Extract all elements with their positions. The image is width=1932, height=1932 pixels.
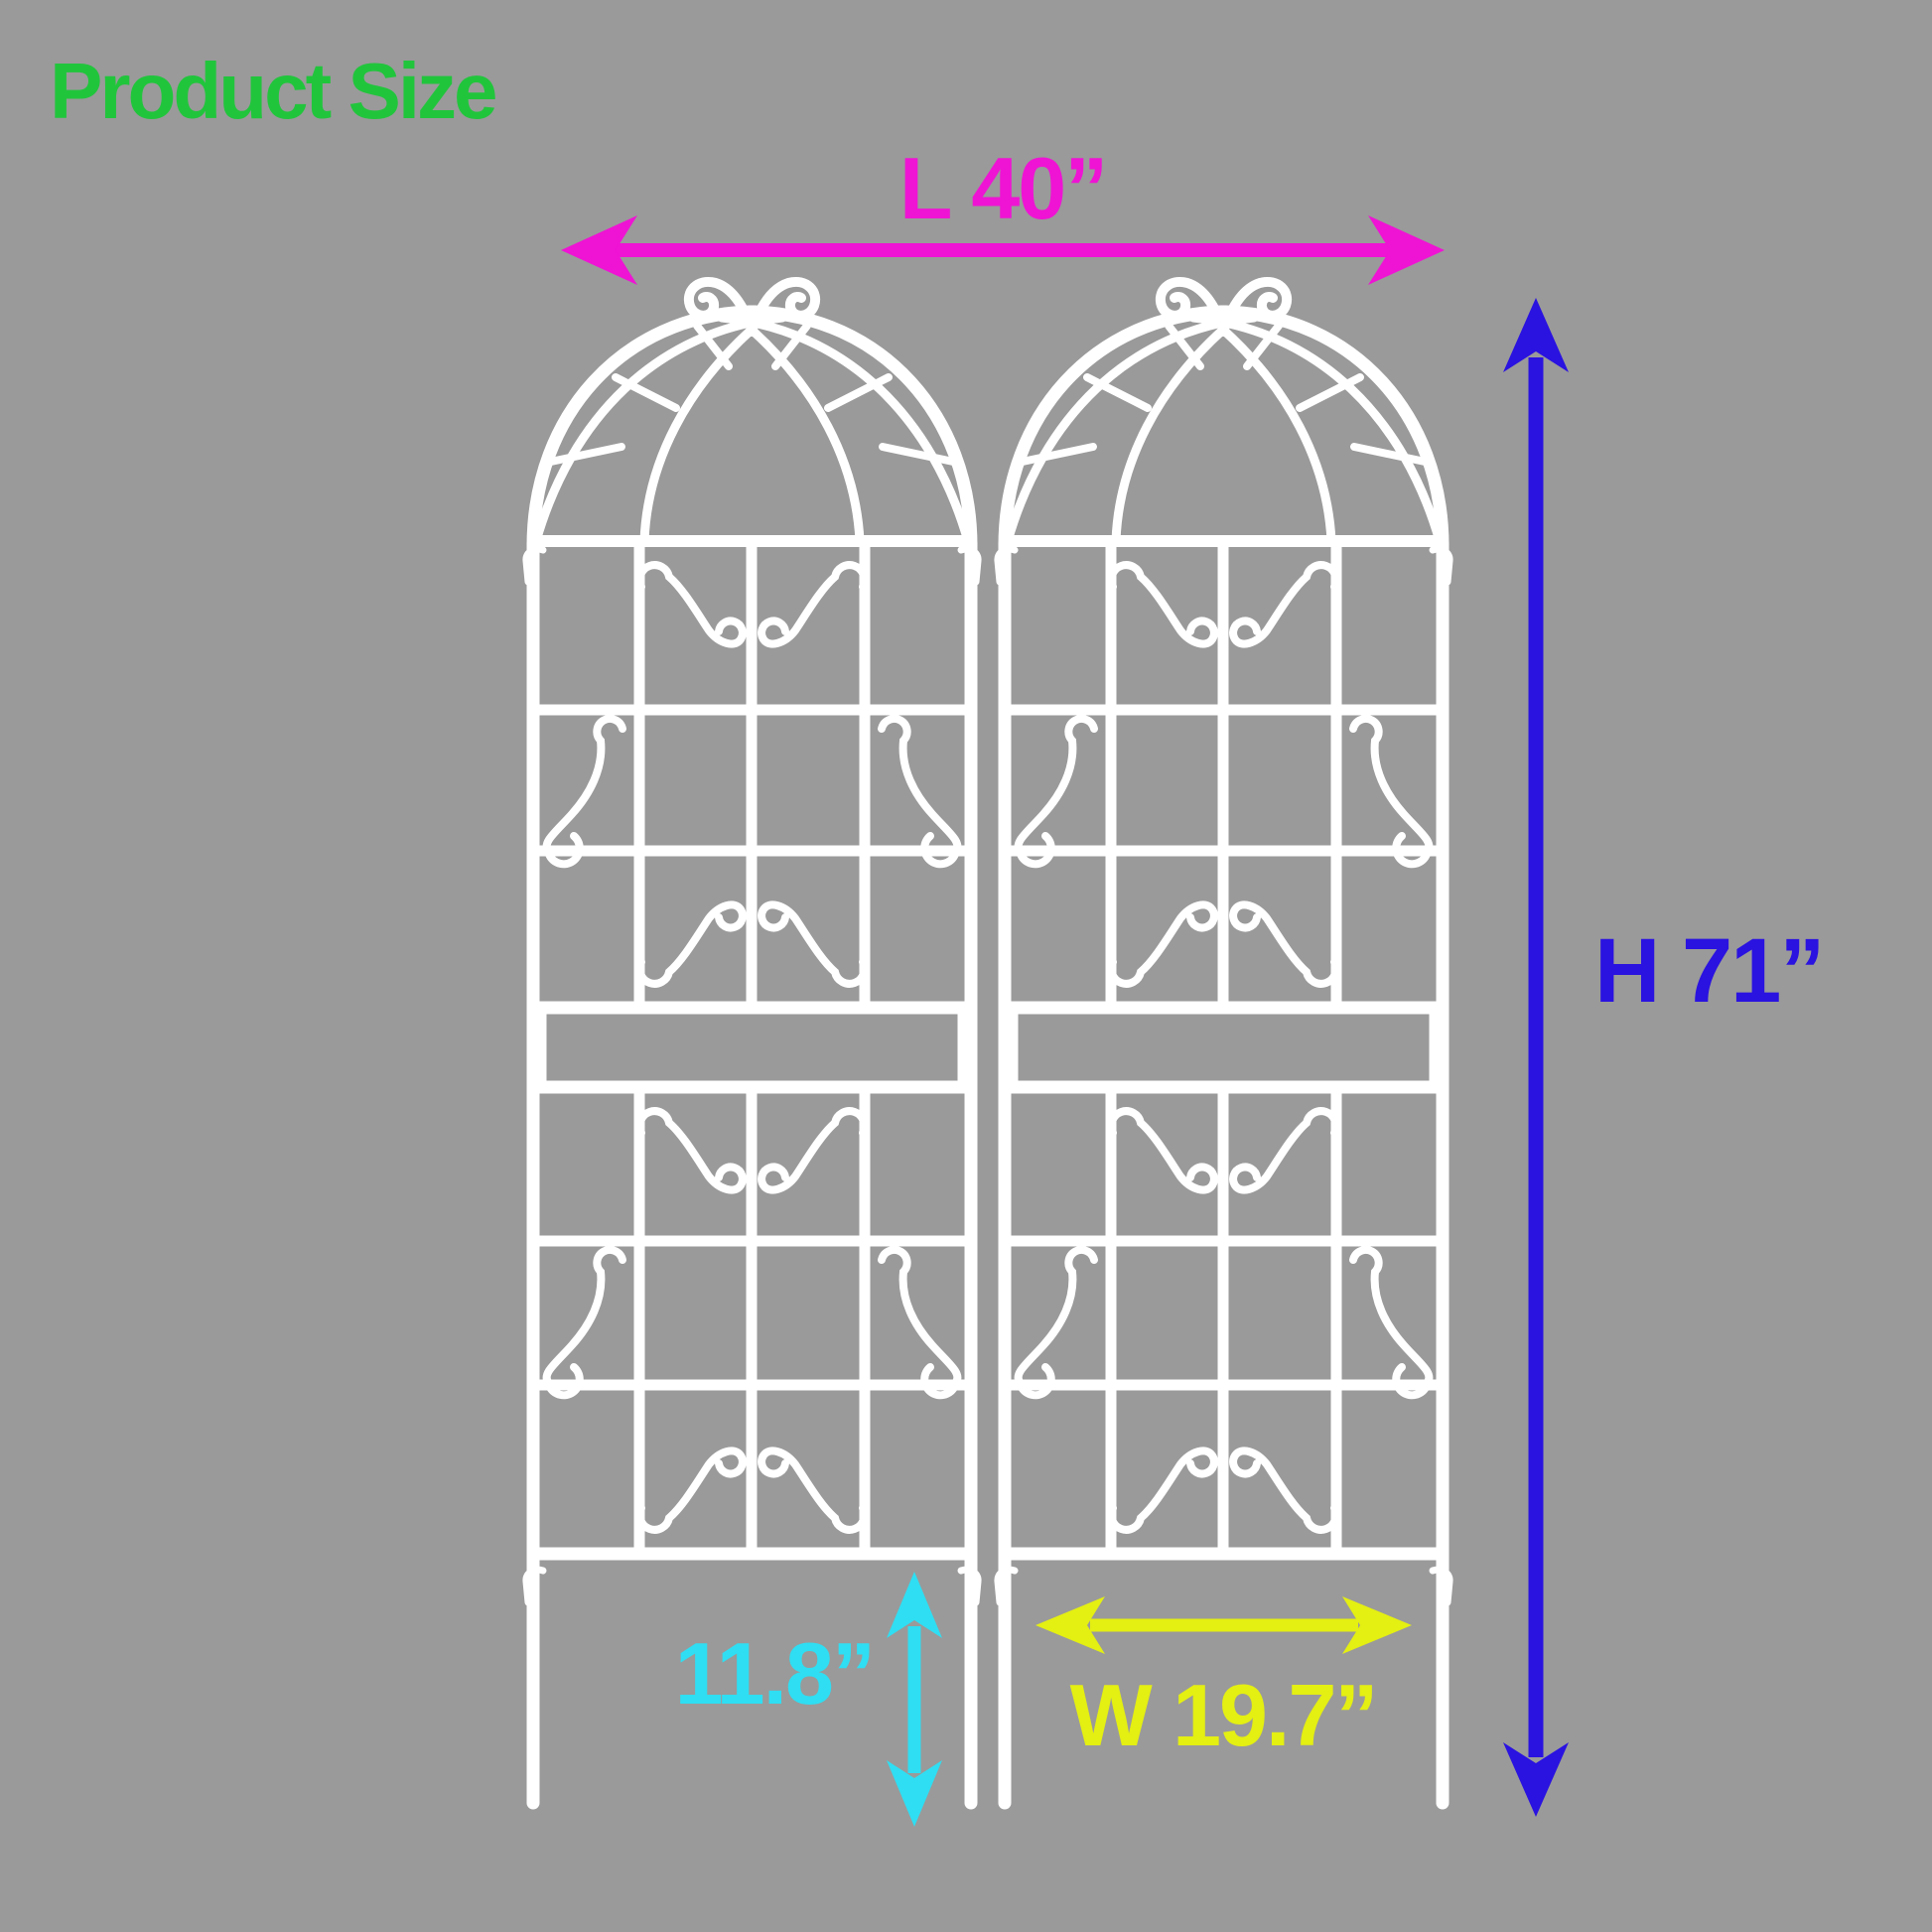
trellis-panel-right [998,282,1449,1803]
panel-width-dimension-label: W 19.7” [1035,1672,1412,1759]
leg-height-arrow [887,1572,942,1827]
page-title: Product Size [50,52,495,131]
height-arrow [1503,298,1569,1817]
length-dimension-label: L 40” [561,145,1445,232]
leg-height-dimension-label: 11.8” [586,1630,874,1718]
trellis-panel-left [526,282,978,1803]
panel-width-arrow [1035,1596,1412,1654]
height-dimension-label: H 71” [1594,925,1853,1017]
product-size-diagram: Product Size L 40” H 71” 11.8” W 19.7” [0,0,1932,1932]
